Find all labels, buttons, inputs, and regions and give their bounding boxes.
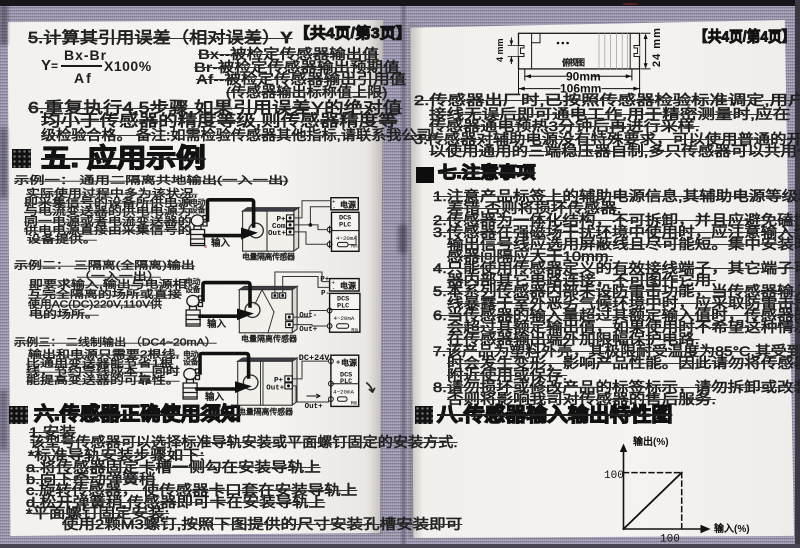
svg-text:PLC: PLC	[340, 378, 352, 386]
svg-text:Out+: Out+	[266, 385, 285, 393]
svg-text:4 mm: 4 mm	[495, 38, 505, 62]
svg-text:电量隔离传感器: 电量隔离传感器	[242, 252, 295, 262]
svg-text:电源: 电源	[340, 200, 356, 210]
svg-text:100: 100	[604, 470, 624, 482]
svg-text:设备: 设备	[185, 284, 201, 294]
svg-text:Rm: Rm	[351, 327, 358, 334]
svg-text:+: +	[336, 360, 340, 368]
svg-text:Out+: Out+	[268, 230, 287, 238]
svg-text:4~20mA: 4~20mA	[333, 389, 354, 396]
svg-text:PLC: PLC	[337, 303, 349, 311]
svg-text:Rm: Rm	[351, 400, 358, 407]
svg-text:输入: 输入	[211, 237, 231, 249]
svg-text:输入(%): 输入(%)	[714, 522, 750, 535]
svg-text:电源: 电源	[341, 358, 357, 368]
svg-text:电量隔离传感器: 电量隔离传感器	[238, 407, 293, 417]
svg-text:P-: P-	[321, 290, 330, 298]
svg-text:Out+: Out+	[299, 326, 318, 334]
svg-text:-: -	[332, 286, 336, 293]
svg-text:设备: 设备	[190, 205, 206, 215]
svg-text:4~20mA: 4~20mA	[334, 315, 355, 322]
svg-text:俯视图: 俯视图	[562, 58, 585, 68]
svg-text:电量隔离传感器: 电量隔离传感器	[241, 334, 297, 344]
svg-text:Rm: Rm	[351, 243, 358, 250]
svg-text:输入: 输入	[207, 318, 227, 330]
svg-text:-: -	[332, 205, 336, 212]
svg-text:100: 100	[660, 534, 680, 546]
svg-text:Out-: Out-	[299, 312, 317, 320]
svg-text:输入: 输入	[205, 391, 225, 403]
svg-text:设备: 设备	[183, 357, 199, 367]
svg-text:4~20mA: 4~20mA	[336, 235, 357, 242]
svg-text:Out+: Out+	[305, 403, 324, 411]
svg-text:输出(%): 输出(%)	[633, 435, 669, 448]
svg-text:106mm: 106mm	[560, 82, 601, 96]
svg-text:24 mm: 24 mm	[651, 27, 663, 67]
svg-text:PLC: PLC	[339, 222, 351, 230]
svg-text:电源: 电源	[340, 281, 356, 291]
